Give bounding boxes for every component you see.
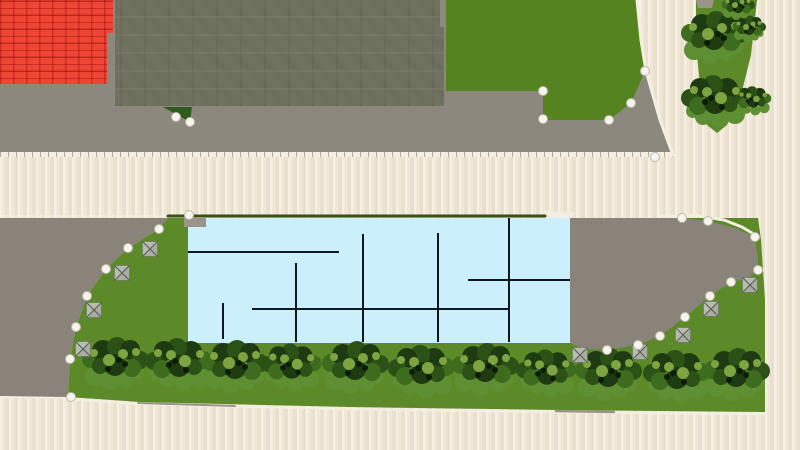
vertex-marker[interactable]: [656, 332, 665, 341]
vertex-marker[interactable]: [102, 265, 111, 274]
tree[interactable]: [82, 337, 149, 390]
pyramid-marker[interactable]: [704, 302, 719, 317]
vertex-marker[interactable]: [754, 266, 763, 275]
tree[interactable]: [452, 343, 519, 396]
vertex-marker[interactable]: [634, 341, 643, 350]
vertex-marker[interactable]: [539, 87, 548, 96]
pyramid-marker[interactable]: [76, 342, 91, 357]
bottom-curb: [68, 399, 764, 414]
tree[interactable]: [145, 338, 212, 391]
median-top-paving: [696, 0, 714, 8]
floorplan-white-corner: [545, 211, 576, 218]
vertex-marker[interactable]: [66, 355, 75, 364]
pyramid-marker[interactable]: [676, 328, 691, 343]
vertex-marker[interactable]: [704, 217, 713, 226]
tree[interactable]: [322, 341, 389, 394]
tree[interactable]: [643, 350, 710, 403]
vertex-marker[interactable]: [603, 346, 612, 355]
vertex-marker[interactable]: [641, 67, 650, 76]
pyramid-marker[interactable]: [573, 348, 588, 363]
vertex-marker[interactable]: [627, 99, 636, 108]
vertex-marker[interactable]: [185, 211, 194, 220]
vertex-marker[interactable]: [751, 233, 760, 242]
vertex-marker[interactable]: [67, 393, 76, 402]
tree[interactable]: [261, 344, 321, 392]
vertex-marker[interactable]: [727, 278, 736, 287]
vertex-marker[interactable]: [678, 214, 687, 223]
pyramid-marker[interactable]: [87, 303, 102, 318]
bottom-left-road-curb: [0, 397, 68, 398]
pyramid-marker[interactable]: [743, 278, 758, 293]
vertex-marker[interactable]: [706, 292, 715, 301]
vertex-marker[interactable]: [186, 118, 195, 127]
vertex-marker[interactable]: [83, 292, 92, 301]
scene-overlay: [0, 0, 800, 450]
road-corner-curb: [637, 0, 673, 155]
pyramid-marker[interactable]: [143, 242, 158, 257]
vertex-marker[interactable]: [124, 244, 133, 253]
vertex-marker[interactable]: [681, 313, 690, 322]
bottom-curb-gray-2: [556, 411, 614, 412]
vertex-marker[interactable]: [155, 225, 164, 234]
pyramid-marker[interactable]: [115, 266, 130, 281]
vertex-marker[interactable]: [539, 115, 548, 124]
site-plan-viewport[interactable]: [0, 0, 800, 450]
vertex-marker[interactable]: [605, 116, 614, 125]
tree[interactable]: [516, 350, 576, 398]
vertex-marker[interactable]: [651, 153, 660, 162]
vertex-marker[interactable]: [72, 323, 81, 332]
vertex-marker[interactable]: [172, 113, 181, 122]
tree[interactable]: [202, 340, 269, 393]
tree[interactable]: [703, 348, 770, 401]
tree[interactable]: [388, 345, 455, 398]
